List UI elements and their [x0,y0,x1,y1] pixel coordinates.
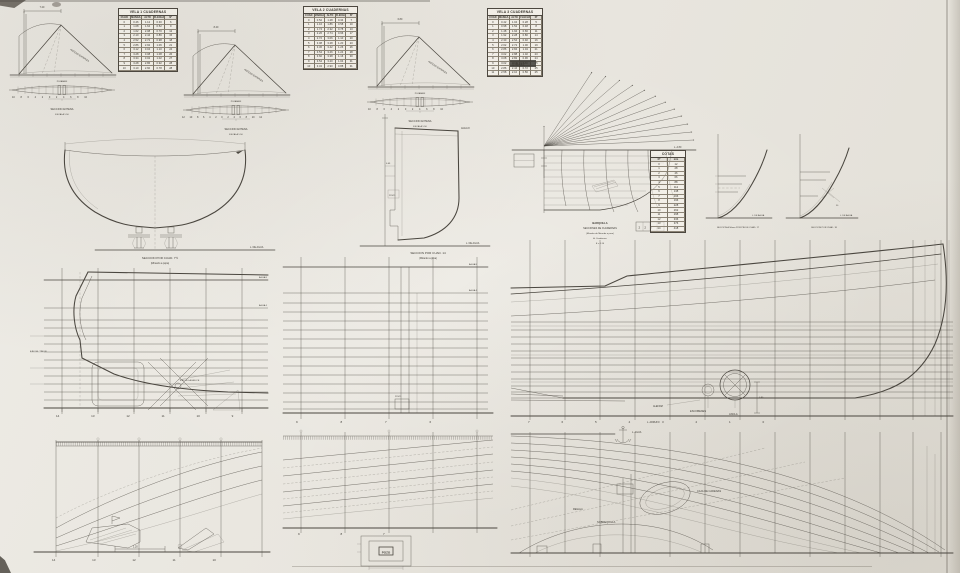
mast-dimension: 7.20 [40,6,45,9]
mast-dimension: 6.80 [398,18,403,21]
waterline-note: L. AGUA [632,431,642,434]
aft-keel-scarf [511,388,625,401]
sail-table-1: VELA 1 CUADERNASCUADMANGAALTOFLECHANº00.… [118,8,178,72]
svg-text:1.20: 1.20 [133,546,138,549]
dimension: 1.20 [115,546,165,553]
anchor-label: ANCLA [729,412,738,416]
bow-halfbreadth: L. AGUA [505,426,958,573]
well-box [395,399,409,409]
station-grid [56,438,262,552]
frame-fan [544,72,694,146]
foot-label: PUJAMEN [57,80,68,83]
stern-hull-outline [74,272,268,393]
note-label: 50 [836,205,839,207]
rudder-axis-label: EJE DEL TIMON [30,351,47,353]
prop-axis-label: EJE DE LA HELICE [180,379,200,382]
waterline-top-label: AGUA 8 [469,263,478,266]
plan-caption: SECCION ANTENA [51,107,74,111]
waterline-grid [511,322,953,398]
station-grid [530,432,941,553]
waterline-label: L. DE AGUA [250,246,264,249]
bulwark-arc [519,524,713,553]
chain-label: CAJA DE CADENAS [697,489,721,493]
waterline-top-label: AGUA 8 [259,276,268,279]
chain-locker-detail [617,474,694,553]
anchor-icon [615,426,631,442]
sheet-corner-mark [0,556,11,573]
foot-label: PUJAMEN [415,92,426,95]
waterline-label: L. DE AGUA [466,242,480,245]
waterline-mid-label: AGUA 4 [469,289,478,292]
yard-label: ANTENA ENTERIZA [243,68,263,83]
sail-plan-1: 7.20 ANTENA ENTERIZA PUJAMEN SECCION ANT… [4,0,120,120]
boat-detail-right [178,528,224,552]
rabbet-label: ALEFRIZ [653,405,663,408]
waterline-top-label: AGUA 8 [461,127,470,130]
sail1-scale-numbers: 10 8 6 4 2 0 2 4 6 8 10 [12,96,87,99]
station-grid [62,268,242,412]
rail-label: REGALA [573,508,583,511]
well-label: POZO [395,396,401,398]
waterline-mid-label: AGUA 4 [259,304,268,307]
hawse-detail [702,370,750,408]
bow-profile: ESCOBENES ANCLA ALEFRIZ 0.90 L. ARRUFO [505,210,958,424]
stern-station-numbers: 14 13 12 11 10 9 [56,414,233,418]
diagonal-dashed [511,448,845,540]
waterline-label: L. A 80 [674,146,682,149]
midship-section: L. DE AGUA SECCION POR CUAD. 7½ (Mirando… [40,116,300,272]
station-grid [301,257,477,413]
foot-label: PUJAMEN [231,100,242,103]
section-caption: SECCION POR CUAD. 7½ [142,256,179,260]
midbody-station-numbers: 9 8 7 6 [296,420,431,424]
stern-profile: AGUA 8 AGUA 4 EJE DEL TIMON EJE DE LA HE… [28,262,276,426]
yard-label: ANTENA ENTERIZA [69,48,89,63]
sail-table-2: VELA 2 CUADERNASCUADMANGAALTOFLECHANº00.… [303,6,358,70]
keel-appendage-port [128,227,150,248]
yard-label: ANTENA ENTERIZA [427,60,447,75]
mast-dimension: 8.40 [214,26,219,29]
well-box-detail: POZO [357,536,411,570]
keel-appendage-starboard [160,227,182,248]
sheer-deck-lines [511,244,943,316]
waterline-grid [283,267,488,409]
diagonal-curves [56,448,262,551]
keelson-label: SOBREQUILLA [597,520,616,524]
bow-station-numbers: 7 6 5 4 3 2 1 0 [528,420,764,424]
stern-halfbreadth: 1.20 [28,430,276,564]
well-label: POZO [382,551,391,555]
well-label: POZO [389,195,395,197]
midbody-halfbreadth: POZO [283,426,501,573]
date-note: 2-8-32 [512,62,525,67]
dimension-label: 0.45 [386,163,391,165]
stern-plan-numbers: 14 13 12 11 10 [52,558,216,562]
drawing-sheet: 7.20 ANTENA ENTERIZA PUJAMEN SECCION ANT… [0,0,960,573]
waterline-diagonals [283,440,493,519]
midbody-plan-numbers: 9 8 7 [298,532,385,536]
station-grid [300,430,478,528]
stem-curve [773,244,946,398]
hawse-label: ESCOBENES [690,409,706,413]
transom-section: 0.45 POZO AGUA 8 L. DE AGUA SECCION POR … [340,106,500,266]
midbody-profile: AGUA 8 AGUA 4 POZO [283,253,501,423]
